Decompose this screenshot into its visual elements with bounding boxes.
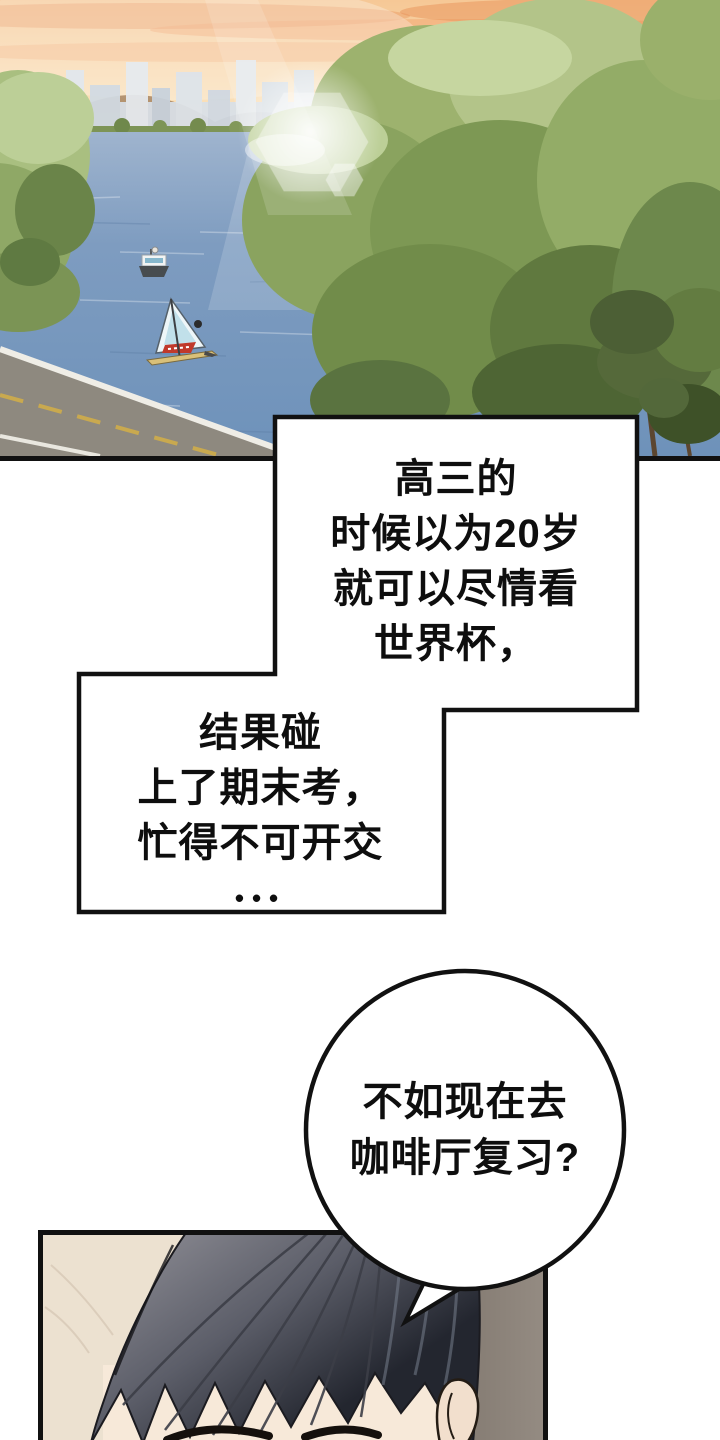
character-ear bbox=[437, 1380, 478, 1440]
bubble2-line1: 结果碰 bbox=[79, 706, 442, 761]
scene-panel-top bbox=[0, 0, 720, 461]
riverside-scene bbox=[0, 0, 720, 456]
bubble2-line3: 忙得不可开交 bbox=[79, 816, 442, 871]
bubble1-line4: 世界杯， bbox=[275, 617, 637, 672]
speech-bubble-2-text: 结果碰 上了期末考， 忙得不可开交 ••• bbox=[79, 706, 442, 926]
bubble2-ellipsis: ••• bbox=[79, 871, 442, 926]
bubble2-line2: 上了期末考， bbox=[79, 761, 442, 816]
character-scene bbox=[43, 1235, 543, 1440]
speech-bubble-3-text: 不如现在去 咖啡厅复习? bbox=[308, 1074, 622, 1186]
bubble3-line1: 不如现在去 bbox=[308, 1074, 622, 1130]
bubble3-line2: 咖啡厅复习? bbox=[308, 1130, 622, 1186]
scene-panel-bottom bbox=[38, 1230, 548, 1440]
speech-bubble-1-text: 高三的 时候以为20岁 就可以尽情看 世界杯， bbox=[275, 452, 637, 672]
bubble1-line1: 高三的 bbox=[275, 452, 637, 507]
bubble1-line2: 时候以为20岁 bbox=[275, 507, 637, 562]
comic-page: 高三的 时候以为20岁 就可以尽情看 世界杯， 结果碰 上了期末考， 忙得不可开… bbox=[0, 0, 720, 1440]
bubble1-line3: 就可以尽情看 bbox=[275, 562, 637, 617]
